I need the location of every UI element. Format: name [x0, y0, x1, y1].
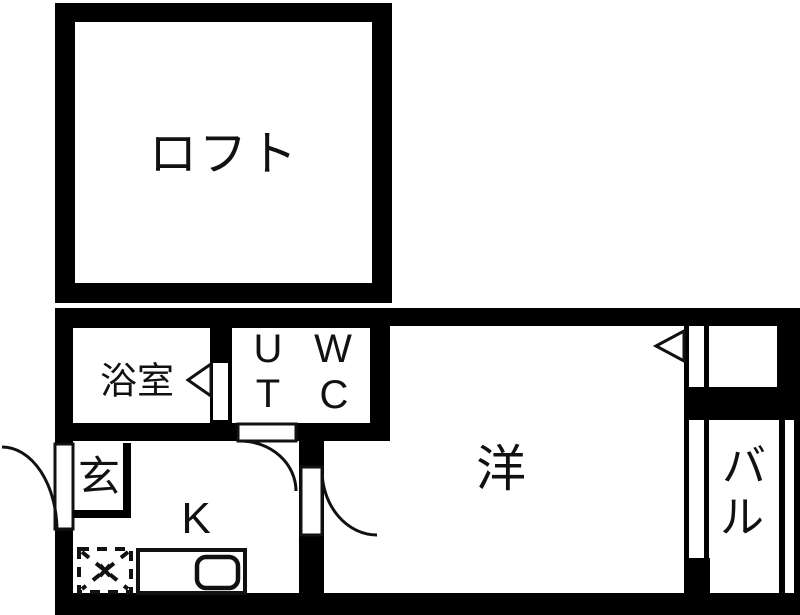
balcony-railing-outer-line: [794, 420, 800, 593]
left-wall-upper: [55, 326, 73, 443]
bathroom-sliding-door: [213, 363, 228, 420]
bottom-wall: [55, 593, 800, 615]
bathroom-label: 浴室: [100, 363, 174, 400]
floorplan-canvas: ロフト 浴室 U T W C 玄 K 洋 バ ル: [0, 0, 800, 615]
entrance-door-swing-arc: [2, 447, 57, 531]
washer-space-dashed-box: [79, 549, 131, 592]
kitchen-door-swing-arc: [322, 470, 377, 535]
kitchen-door-leaf: [301, 467, 322, 535]
genkan-wall-bottom: [73, 510, 131, 518]
utwc-door-leaf: [238, 424, 296, 441]
utwc-door-swing-arc: [240, 441, 296, 491]
genkan-wall-right: [123, 443, 131, 518]
kitchen-sink: [197, 557, 238, 588]
toilet-label-top: W: [314, 329, 352, 369]
loft-label: ロフト: [149, 131, 299, 179]
utility-label-bottom: T: [256, 374, 280, 414]
balcony-window-bottom-wall: [684, 558, 710, 593]
kitchen-label: K: [181, 497, 210, 541]
toilet-label-bottom: C: [320, 375, 349, 415]
entrance-label: 玄: [78, 456, 120, 498]
floorplan-drawing: [0, 0, 800, 615]
window-frame-left-line: [684, 420, 689, 558]
utility-label-top: U: [254, 329, 283, 369]
balcony-railing-inner-line: [779, 420, 785, 593]
balcony-top-wall: [684, 387, 800, 420]
balcony-door-arrow-icon: [656, 331, 684, 361]
western-room-label: 洋: [476, 444, 526, 494]
window-frame-right-line: [704, 420, 709, 558]
balcony-label-char2: ル: [720, 496, 764, 540]
balcony-label-char1: バ: [722, 445, 766, 489]
window-frame-top-right-line: [704, 326, 709, 387]
